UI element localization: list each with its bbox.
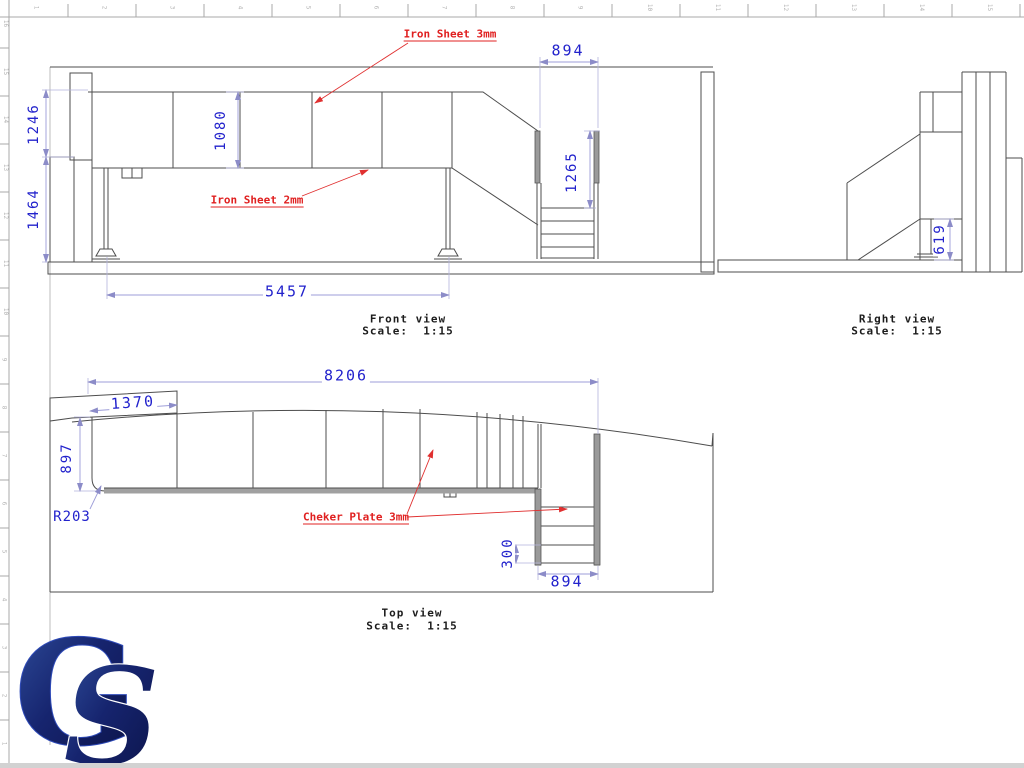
dim-total-length: 8206 <box>322 369 370 384</box>
top-ruler-label: 9 <box>576 6 583 10</box>
dim-step-height: 619 <box>933 221 947 256</box>
left-ruler-label: 1 <box>0 742 7 746</box>
top-ruler-label: 11 <box>714 4 721 11</box>
right-view-scale: Scale: 1:15 <box>851 326 942 337</box>
dim-stair-width-front: 894 <box>549 44 586 59</box>
top-ruler-label: 4 <box>236 6 243 10</box>
annotation-leader-lines <box>302 43 567 517</box>
left-ruler-label: 12 <box>2 212 9 219</box>
top-ruler-label: 6 <box>372 6 379 10</box>
right-view-caption: Right view <box>859 314 935 325</box>
top-view-caption: Top view <box>382 608 443 619</box>
left-ruler-label: 4 <box>0 598 7 602</box>
left-ruler-label: 10 <box>2 308 9 315</box>
left-ruler-label: 9 <box>0 358 7 362</box>
dim-upper-height: 1246 <box>27 101 41 147</box>
dim-base-length: 5457 <box>263 285 311 300</box>
left-ruler-label: 6 <box>0 502 7 506</box>
left-ruler-label: 11 <box>2 260 9 267</box>
left-ruler-label: 15 <box>2 68 9 75</box>
label-iron-sheet-2mm: Iron Sheet 2mm <box>211 195 304 208</box>
top-ruler-label: 12 <box>782 4 789 11</box>
left-ruler-label: 7 <box>0 454 7 458</box>
label-cheker-plate-3mm: Cheker Plate 3mm <box>303 512 409 525</box>
top-ruler-label: 5 <box>304 6 311 10</box>
front-view-linework <box>48 67 714 274</box>
top-ruler-label: 3 <box>168 6 175 10</box>
drawing-sheet: G S 123456789101112131415 16151413121110… <box>0 0 1024 768</box>
dim-stair-height: 1265 <box>565 149 579 195</box>
front-view-caption: Front view <box>370 314 446 325</box>
left-ruler-label: 5 <box>0 550 7 554</box>
dim-tread-depth: 300 <box>501 535 515 570</box>
top-ruler-label: 2 <box>100 6 107 10</box>
dim-landing-length: 1370 <box>108 394 157 412</box>
top-ruler-label: 1 <box>32 6 39 10</box>
label-iron-sheet-3mm: Iron Sheet 3mm <box>404 29 497 42</box>
top-ruler-label: 14 <box>918 4 925 11</box>
top-ruler-label: 8 <box>508 6 515 10</box>
left-ruler-label: 2 <box>0 694 7 698</box>
top-ruler-label: 7 <box>440 6 447 10</box>
right-view-linework <box>718 72 1022 272</box>
top-view-scale: Scale: 1:15 <box>366 621 457 632</box>
top-ruler-label: 10 <box>646 4 653 11</box>
dim-stair-width-top: 894 <box>548 575 585 590</box>
left-ruler-label: 13 <box>2 164 9 171</box>
dimension-lines <box>46 62 950 574</box>
left-ruler-label: 3 <box>0 646 7 650</box>
left-ruler-label: 8 <box>0 406 7 410</box>
dim-corner-radius: R203 <box>53 510 91 524</box>
drawing-canvas: G S <box>0 0 1024 768</box>
top-ruler-label: 13 <box>850 4 857 11</box>
extension-lines <box>42 57 954 580</box>
company-logo: G S <box>14 609 161 768</box>
dim-deck-width: 897 <box>60 440 74 475</box>
left-ruler-label: 16 <box>2 20 9 27</box>
left-ruler-label: 14 <box>2 116 9 123</box>
front-view-scale: Scale: 1:15 <box>362 326 453 337</box>
sheet-bottom-edge <box>0 763 1024 768</box>
logo-letter-s: S <box>63 637 161 768</box>
dim-lower-height: 1464 <box>27 186 41 232</box>
top-ruler-label: 15 <box>986 4 993 11</box>
dim-wall-height: 1080 <box>214 107 228 153</box>
